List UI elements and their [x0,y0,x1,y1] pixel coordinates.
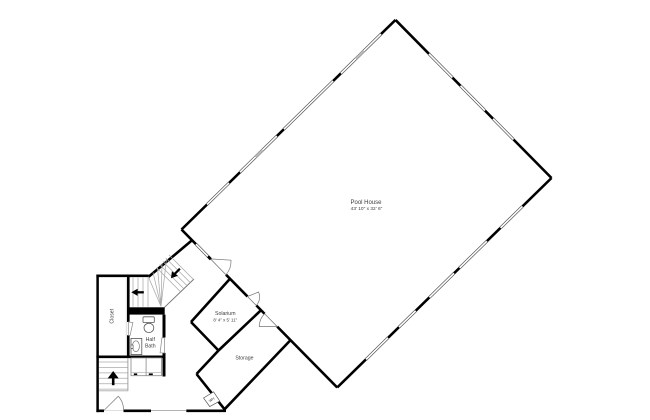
svg-text:Bath: Bath [145,344,156,350]
svg-text:Closet: Closet [110,308,116,323]
svg-text:8' 4" x 5' 11": 8' 4" x 5' 11" [213,318,237,323]
svg-text:Pool House: Pool House [350,200,382,206]
svg-text:Solarium: Solarium [215,311,235,317]
svg-text:43' 10" x 32' 6": 43' 10" x 32' 6" [351,206,383,212]
svg-text:Half: Half [146,337,156,343]
svg-text:Storage: Storage [235,356,253,362]
